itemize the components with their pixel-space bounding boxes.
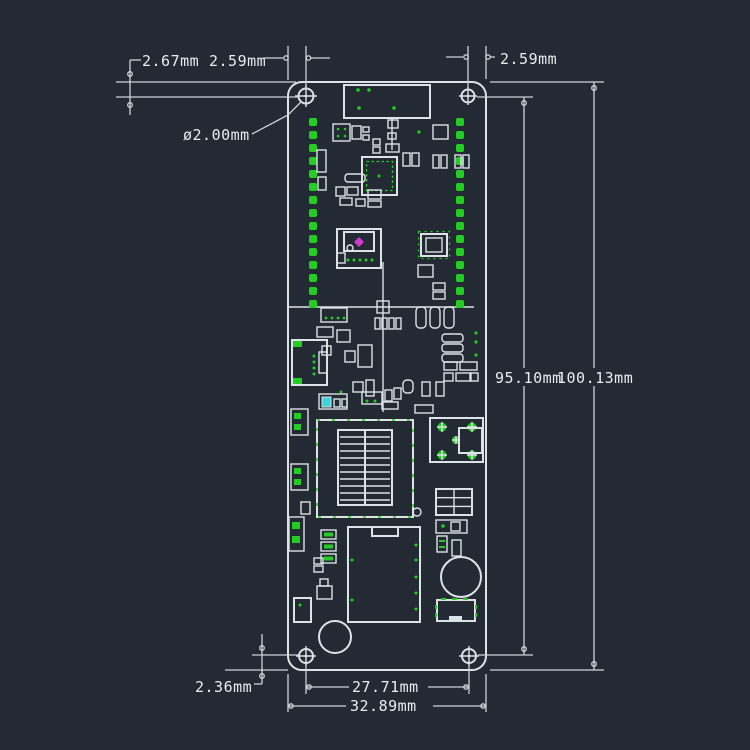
dim-label-hole-offset-top-right: 2.59mm — [500, 50, 557, 68]
gps-shield-module — [317, 420, 421, 517]
mounting-hole-top-right — [459, 87, 477, 105]
buzzer-circle — [441, 557, 481, 597]
top-left-component-cluster — [333, 118, 399, 153]
cad-drawing-canvas: 2.67mm 2.59mm 2.59mm ø2.00mm 95.10mm 100… — [0, 0, 750, 750]
bottom-left-pads — [314, 530, 336, 572]
dim-label-edge-offset-bottom: 2.36mm — [195, 678, 252, 696]
small-ic-top-right — [417, 125, 448, 139]
dim-right-vertical: 95.10mm 100.13mm — [477, 82, 633, 670]
radio-module — [337, 229, 381, 268]
left-edge-connectors — [289, 409, 310, 551]
component-below-grid — [436, 520, 467, 556]
dim-label-board-height: 100.13mm — [557, 369, 633, 387]
dim-bottom-left: 2.36mm — [195, 634, 299, 696]
antenna-keepout-area — [344, 85, 430, 118]
dim-label-holes-span-vertical: 95.10mm — [495, 369, 562, 387]
dim-label-hole-offset-top-left: 2.59mm — [209, 52, 266, 70]
left-castellated-pads — [309, 118, 317, 308]
dim-label-hole-diameter: ø2.00mm — [183, 126, 250, 144]
component-below-buzzer — [435, 598, 477, 621]
right-castellated-pads — [456, 118, 478, 357]
mid-passives-cluster — [317, 150, 469, 207]
dim-bottom-spans: 27.71mm 32.89mm — [288, 664, 486, 715]
mounting-hole-bottom-right — [459, 646, 479, 666]
grid-connector — [436, 489, 472, 515]
bottom-left-component — [294, 579, 332, 622]
user-button — [430, 418, 483, 462]
dim-hole-diameter: ø2.00mm — [183, 101, 302, 144]
center-component-cluster — [317, 308, 444, 413]
dim-label-holes-span-horizontal: 27.71mm — [352, 678, 419, 696]
mid-right-passives — [416, 265, 478, 381]
antenna-mount-circle — [319, 621, 351, 653]
cyan-marked-component — [319, 391, 347, 410]
dim-label-edge-offset-top: 2.67mm — [142, 52, 199, 70]
dim-label-board-width: 32.89mm — [350, 697, 417, 715]
mounting-hole-bottom-left — [296, 646, 316, 666]
dim-top-left: 2.67mm — [116, 52, 299, 115]
battery-holder — [348, 527, 420, 622]
pcb-dimension-drawing: 2.67mm 2.59mm 2.59mm ø2.00mm 95.10mm 100… — [0, 0, 750, 750]
small-ic-mid-right — [419, 232, 450, 259]
